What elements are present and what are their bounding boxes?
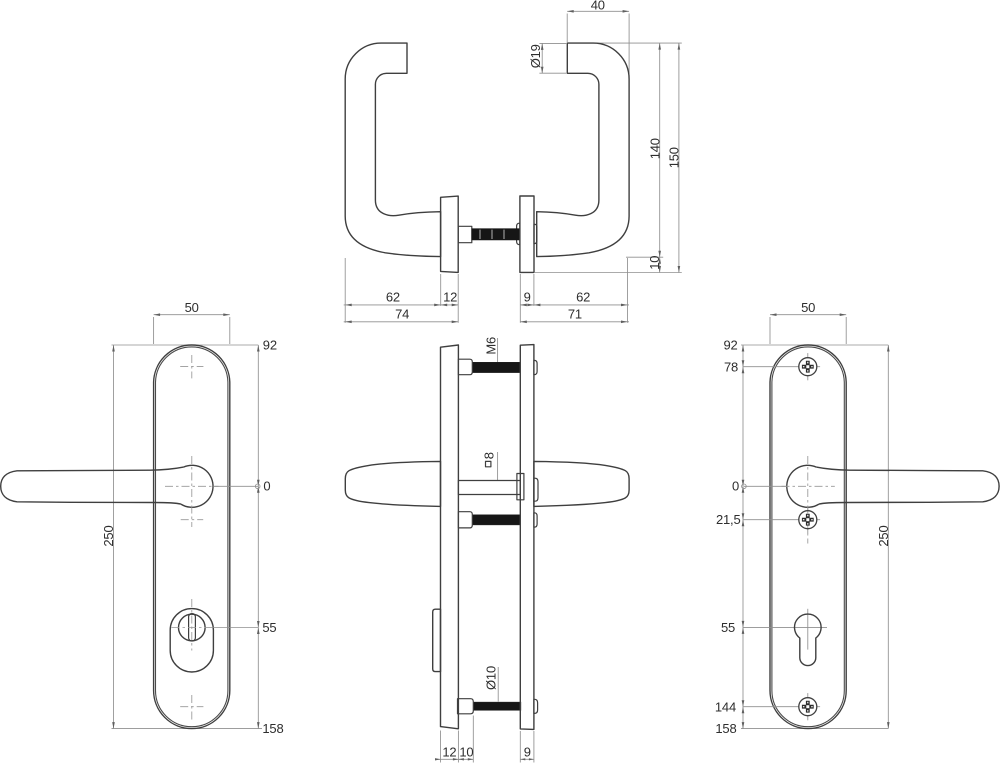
- svg-text:12: 12: [442, 745, 456, 760]
- svg-text:55: 55: [721, 620, 735, 635]
- svg-text:50: 50: [185, 300, 199, 315]
- svg-text:62: 62: [576, 290, 590, 305]
- svg-text:74: 74: [395, 307, 409, 322]
- svg-text:Ø10: Ø10: [484, 666, 499, 690]
- svg-text:158: 158: [715, 721, 736, 736]
- svg-text:50: 50: [801, 300, 815, 315]
- svg-text:78: 78: [724, 359, 738, 374]
- svg-text:144: 144: [715, 699, 736, 714]
- svg-text:Ø19: Ø19: [528, 44, 543, 68]
- svg-text:9: 9: [524, 290, 531, 305]
- svg-text:10: 10: [647, 256, 662, 270]
- svg-text:92: 92: [723, 338, 737, 353]
- svg-text:21,5: 21,5: [716, 512, 741, 527]
- svg-text:0: 0: [732, 479, 739, 494]
- svg-text:140: 140: [647, 138, 662, 159]
- svg-text:M6: M6: [483, 337, 498, 355]
- svg-text:12: 12: [443, 290, 457, 305]
- svg-text:62: 62: [386, 290, 400, 305]
- svg-text:71: 71: [568, 307, 582, 322]
- svg-text:8: 8: [482, 452, 497, 459]
- svg-text:150: 150: [667, 147, 682, 168]
- svg-text:9: 9: [524, 745, 531, 760]
- svg-text:250: 250: [101, 526, 116, 547]
- svg-text:10: 10: [459, 745, 473, 760]
- svg-text:40: 40: [591, 0, 605, 12]
- svg-text:0: 0: [263, 479, 270, 494]
- svg-text:55: 55: [262, 620, 276, 635]
- svg-text:92: 92: [263, 338, 277, 353]
- svg-text:250: 250: [876, 526, 891, 547]
- svg-text:158: 158: [262, 721, 283, 736]
